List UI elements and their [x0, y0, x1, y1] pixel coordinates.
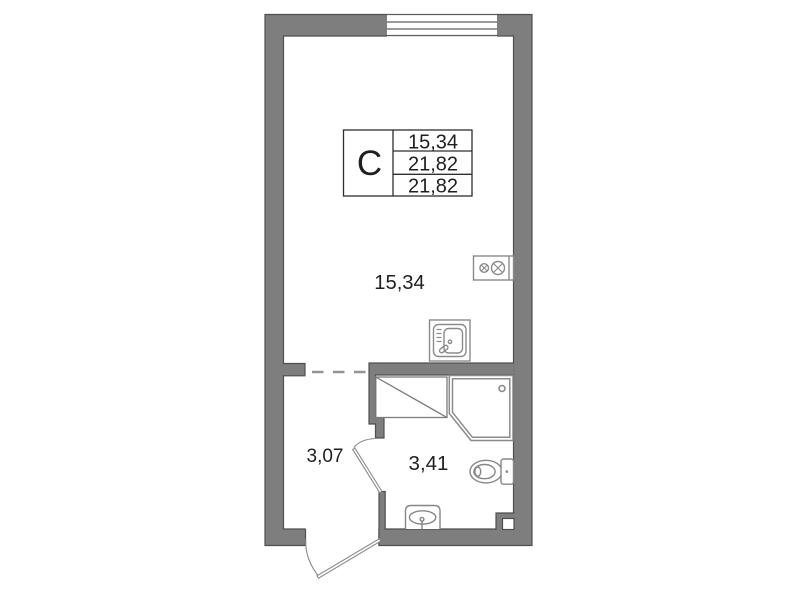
svg-text:21,82: 21,82 [408, 154, 458, 176]
svg-text:15,34: 15,34 [374, 272, 425, 294]
svg-text:3,07: 3,07 [307, 446, 344, 467]
svg-text:15,34: 15,34 [408, 132, 458, 154]
svg-text:3,41: 3,41 [409, 452, 449, 475]
svg-text:C: C [357, 144, 382, 183]
svg-text:21,82: 21,82 [408, 175, 458, 197]
